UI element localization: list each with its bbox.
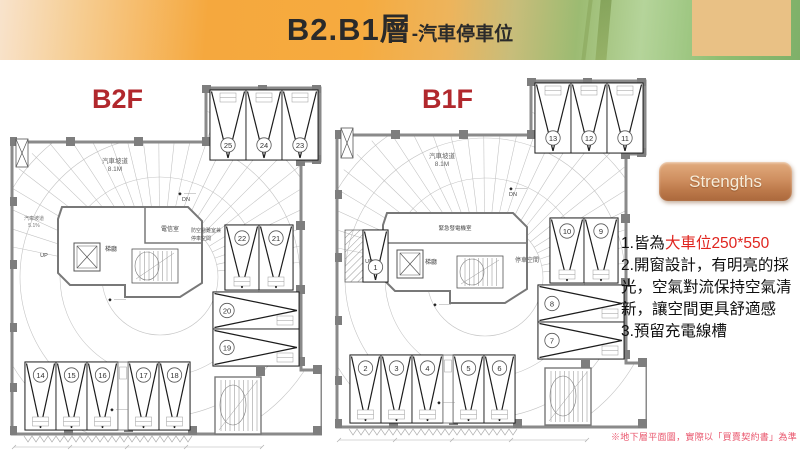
stalls-right-horizontal: 87: [538, 285, 624, 359]
header-banner: B2.B1層 -汽車停車位: [0, 0, 800, 60]
stalls-bottom-left: 141516: [25, 362, 118, 430]
page-title: B2.B1層 -汽車停車位: [0, 4, 800, 49]
svg-text:停車空間: 停車空間: [191, 235, 211, 242]
stall-10: 10: [550, 218, 584, 283]
svg-text:防空避難室兼: 防空避難室兼: [191, 227, 221, 234]
stall-3: 3: [381, 355, 412, 423]
stalls-bottom-right: 1718: [128, 362, 190, 430]
stall-22: 22: [225, 225, 259, 290]
svg-text:11: 11: [621, 134, 629, 143]
stall-23: 23: [282, 90, 318, 160]
svg-text:24: 24: [260, 141, 268, 150]
stall-25: 25: [210, 90, 246, 160]
corner-staircase: [545, 368, 591, 425]
stalls-right-horizontal: 2019: [213, 292, 299, 366]
strength-item-1-highlight: 大車位250*550: [665, 235, 769, 252]
stall-7: 7: [538, 322, 624, 359]
left-window: [16, 139, 28, 167]
dimension-band: [337, 429, 589, 442]
svg-text:6: 6: [497, 364, 501, 373]
svg-text:梯廳: 梯廳: [105, 245, 117, 253]
svg-text:5: 5: [466, 364, 470, 373]
svg-text:汽車坡道: 汽車坡道: [429, 151, 456, 160]
stalls-right-vertical: 2221: [225, 225, 293, 290]
stall-14: 14: [25, 362, 56, 430]
svg-text:緊急發電機室: 緊急發電機室: [438, 224, 472, 232]
elevator: [74, 243, 100, 271]
stalls-bottom-left: 234: [350, 355, 443, 423]
strength-item-1-prefix: 1.皆為: [621, 235, 665, 252]
svg-text:◆: ◆: [178, 191, 182, 196]
core-stair: [457, 256, 503, 288]
stalls-right-vertical: 109: [550, 218, 618, 283]
svg-text:汽車坡道: 汽車坡道: [24, 215, 44, 222]
page-title-main: B2.B1層: [287, 4, 412, 49]
stall-12: 12: [571, 83, 607, 153]
stall-21: 21: [259, 225, 293, 290]
stall-11: 11: [607, 83, 643, 153]
svg-text:9: 9: [599, 227, 603, 236]
svg-text:10: 10: [563, 227, 571, 236]
svg-text:20: 20: [223, 306, 231, 315]
svg-text:◆: ◆: [437, 400, 441, 405]
stall-15: 15: [56, 362, 87, 430]
strengths-button[interactable]: Strengths: [659, 162, 792, 201]
svg-text:8: 8: [550, 299, 554, 308]
svg-text:8.1M: 8.1M: [435, 161, 449, 168]
svg-text:25: 25: [224, 141, 232, 150]
svg-text:汽車坡道: 汽車坡道: [102, 156, 129, 165]
stall-24: 24: [246, 90, 282, 160]
stalls-bottom-right: 56: [453, 355, 515, 423]
dimension-band: [12, 436, 264, 449]
strength-item-1: 1.皆為大車位250*550: [621, 233, 800, 255]
svg-text:◆: ◆: [509, 186, 513, 191]
stall-19: 19: [213, 329, 299, 366]
corner-staircase: [215, 377, 261, 434]
svg-text:梯廳: 梯廳: [425, 258, 437, 266]
svg-text:UP: UP: [365, 259, 373, 265]
core-stair: [132, 249, 178, 283]
svg-text:14: 14: [36, 371, 44, 380]
svg-text:13: 13: [549, 134, 557, 143]
strengths-list: 1.皆為大車位250*550 2.開窗設計，有明亮的採光，空氣對流保持空氣清新，…: [621, 233, 800, 343]
stall-8: 8: [538, 285, 624, 322]
stall-extra: 1: [363, 230, 388, 282]
svg-text:22: 22: [238, 234, 246, 243]
svg-text:DN: DN: [182, 197, 190, 203]
page-title-sub: -汽車停車位: [412, 19, 513, 46]
svg-text:◆: ◆: [433, 302, 437, 307]
stall-17: 17: [128, 362, 159, 430]
svg-text:◆: ◆: [110, 407, 114, 412]
bottom-gap-column: [443, 355, 453, 423]
stall-5: 5: [453, 355, 484, 423]
b2f-floor-plan: 252423222120191415161718汽車坡道8.1M汽車坡道5.1%…: [10, 85, 322, 450]
svg-text:21: 21: [272, 234, 280, 243]
left-window: [341, 128, 353, 158]
elevator: [397, 250, 423, 278]
stall-18: 18: [159, 362, 190, 430]
svg-text:8.1M: 8.1M: [108, 166, 122, 173]
svg-text:12: 12: [585, 134, 593, 143]
stalls-top: 252423: [210, 90, 318, 160]
svg-text:電信室: 電信室: [161, 225, 179, 233]
b1f-floor-plan: 13121110987234561汽車坡道8.1MUPDN緊急發電機室梯廳停車空…: [335, 78, 647, 446]
stall-13: 13: [535, 83, 571, 153]
hatched-area: [345, 230, 363, 282]
svg-text:DN: DN: [509, 192, 517, 198]
strength-item-2: 2.開窗設計，有明亮的採光，空氣對流保持空氣清新，讓空間更具舒適感: [621, 255, 800, 321]
svg-text:1: 1: [373, 263, 377, 272]
svg-text:23: 23: [296, 141, 304, 150]
stall-6: 6: [484, 355, 515, 423]
svg-text:2: 2: [363, 364, 367, 373]
svg-text:4: 4: [425, 364, 429, 373]
stall-2: 2: [350, 355, 381, 423]
disclaimer-footnote: ※地下層平面圖，實際以「買賣契約書」為準: [611, 430, 797, 443]
bottom-gap-column: [118, 362, 128, 430]
svg-text:18: 18: [170, 371, 178, 380]
svg-text:7: 7: [550, 336, 554, 345]
svg-text:15: 15: [67, 371, 75, 380]
stall-1: 1: [363, 230, 388, 282]
core-rooms: [58, 207, 202, 297]
strength-item-3: 3.預留充電線槽: [621, 321, 800, 343]
stall-20: 20: [213, 292, 299, 329]
svg-text:19: 19: [223, 343, 231, 352]
svg-text:停車空間: 停車空間: [515, 256, 539, 264]
slide: B2.B1層 -汽車停車位 B2F B1F 252423222120191415…: [0, 0, 800, 450]
svg-text:3: 3: [394, 364, 398, 373]
stall-4: 4: [412, 355, 443, 423]
stall-9: 9: [584, 218, 618, 283]
stalls-top: 131211: [535, 83, 643, 153]
svg-text:17: 17: [139, 371, 147, 380]
svg-text:5.1%: 5.1%: [28, 223, 40, 229]
svg-text:◆: ◆: [108, 297, 112, 302]
svg-text:UP: UP: [40, 253, 48, 259]
svg-text:16: 16: [98, 371, 106, 380]
stall-16: 16: [87, 362, 118, 430]
